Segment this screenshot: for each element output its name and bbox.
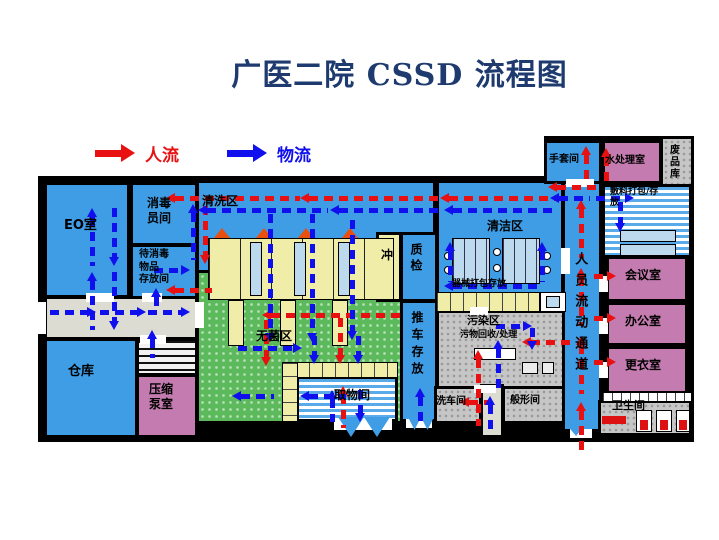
fixture-rect [561,248,570,274]
fixture-rect [294,242,306,296]
material-flow-arrow [347,220,358,340]
fixture-rect [195,302,204,328]
material-flow-arrow [537,242,548,282]
fixture-rect [522,362,538,374]
people-flow-arrow [594,271,616,282]
material-flow-arrow [100,307,146,318]
material-flow-arrow [330,205,442,216]
people-flow-arrow [576,200,587,258]
fixture-rect [436,292,540,312]
fixture-rect [282,362,298,422]
label-cangku: 仓库 [68,364,94,380]
label-renyuan: 人员流动通道 [571,252,587,378]
material-flow-arrow [415,388,426,422]
fixture-rect [542,362,554,374]
slide: 广医二院 CSSD 流程图 人流 物流 EO室消毒 员间待消毒 物品 存放间仓库… [0,0,719,540]
fixture-rect [546,296,560,308]
material-flow-arrow [232,391,274,402]
label-xichejian: 洗车间 [436,396,466,409]
fixture-rect [282,362,398,378]
material-flow-arrow [87,208,98,266]
label-qingjiequ: 清洁区 [487,219,523,234]
people-flow-arrow [473,350,484,426]
material-flow-arrow [307,214,318,342]
label-qixie: 器械打包存放 [452,279,506,290]
material-flow-arrow [151,288,162,312]
label-daixiaodu: 待消毒 物品 存放间 [139,249,169,287]
label-tuiche: 推车存放 [409,311,424,379]
people-flow-arrow [300,193,440,204]
material-flow-arrow [87,272,98,330]
people-flow-arrow [262,310,400,321]
people-flow-arrow [166,285,212,296]
fixture-rect [502,238,540,284]
material-flow-arrow [109,208,120,266]
fixture-rect [228,300,244,346]
label-eo: EO室 [64,218,97,234]
people-flow-arrow [594,313,616,324]
material-flow-arrow [445,242,456,282]
fixture-rect [660,420,668,430]
label-wuwu: 污物回收/处理 [460,330,517,341]
stool-circle [493,264,501,272]
label-fuliao: 敷料打包/存 放 [610,187,658,210]
label-shuichuli: 水处理室 [605,155,645,168]
material-flow-arrow [109,272,120,330]
stool-circle [493,248,501,256]
label-yasuo: 压缩 泵室 [149,382,173,412]
label-banxingjian: 般形间 [510,395,540,408]
material-flow-arrow [188,204,199,260]
people-flow-arrow [576,402,587,454]
label-quwujian: 取物间 [334,388,370,403]
room-corridor-left [44,296,198,340]
people-flow-arrow [581,146,592,184]
material-flow-arrow [353,336,364,364]
floor-plan: EO室消毒 员间待消毒 物品 存放间仓库压缩 泵室清洗区无菌区冲质检推车存放取物… [0,0,719,540]
fixture-rect [602,416,626,424]
people-flow-arrow [440,193,558,204]
label-weishengjian: 卫生间 [612,399,645,413]
material-flow-arrow [50,307,96,318]
label-bangongshi: 办公室 [625,314,661,329]
people-flow-arrow [335,318,346,364]
fixture-rect [250,242,262,296]
material-flow-arrow [147,330,158,358]
fixture-rect [452,238,490,284]
fixture-rect [640,420,648,430]
label-feipinku: 废品库 [666,144,679,180]
material-flow-arrow [309,336,320,364]
material-flow-arrow [550,193,590,204]
room-cangku [44,338,138,438]
material-flow-arrow [265,214,276,342]
label-shoutao: 手套间 [549,154,579,167]
fixture-rect [38,302,46,334]
label-qingxiqu: 清洗区 [202,194,238,209]
label-huiyishi: 会议室 [625,268,661,283]
label-gengyishi: 更衣室 [625,358,661,373]
material-flow-arrow [444,205,556,216]
fixture-rect [679,420,687,430]
material-flow-arrow [238,343,302,354]
material-flow-arrow [527,328,538,350]
label-zhijian: 质检 [408,243,423,275]
label-wuranqu: 污染区 [467,314,500,328]
fixture-rect [620,244,676,256]
material-flow-arrow [493,340,504,392]
people-flow-arrow [594,357,616,368]
material-flow-arrow [485,396,496,432]
label-wujunqu: 无菌区 [256,329,292,344]
fixture-rect [620,230,676,242]
label-chong: 冲 [381,248,393,263]
label-xiaodu-yuanjian: 消毒 员间 [147,196,171,226]
